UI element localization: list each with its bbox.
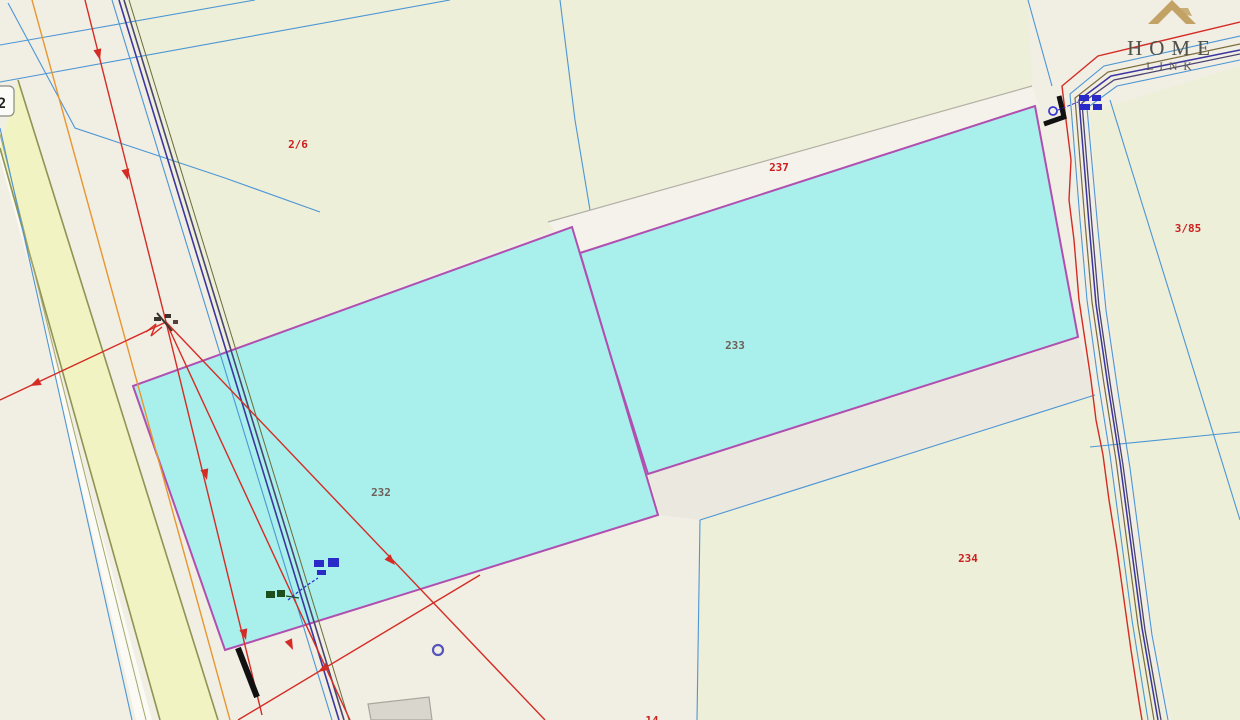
parcel-label-3-85: 3/85: [1175, 222, 1202, 235]
parcel-label-237: 237: [769, 161, 789, 174]
cadastral-map: 2 2/6 237 233 232 234 3/85 14: [0, 0, 1240, 720]
parcel-label-14: 14: [645, 714, 659, 720]
parcel-label-234: 234: [958, 552, 978, 565]
map-viewport[interactable]: 2 2/6 237 233 232 234 3/85 14 HOME LINK: [0, 0, 1240, 720]
road-number-text: 2: [0, 96, 6, 112]
parcel-label-2-6: 2/6: [288, 138, 308, 151]
road-number-badge: 2: [0, 86, 14, 116]
parcel-label-232: 232: [371, 486, 391, 499]
parcel-label-233: 233: [725, 339, 745, 352]
